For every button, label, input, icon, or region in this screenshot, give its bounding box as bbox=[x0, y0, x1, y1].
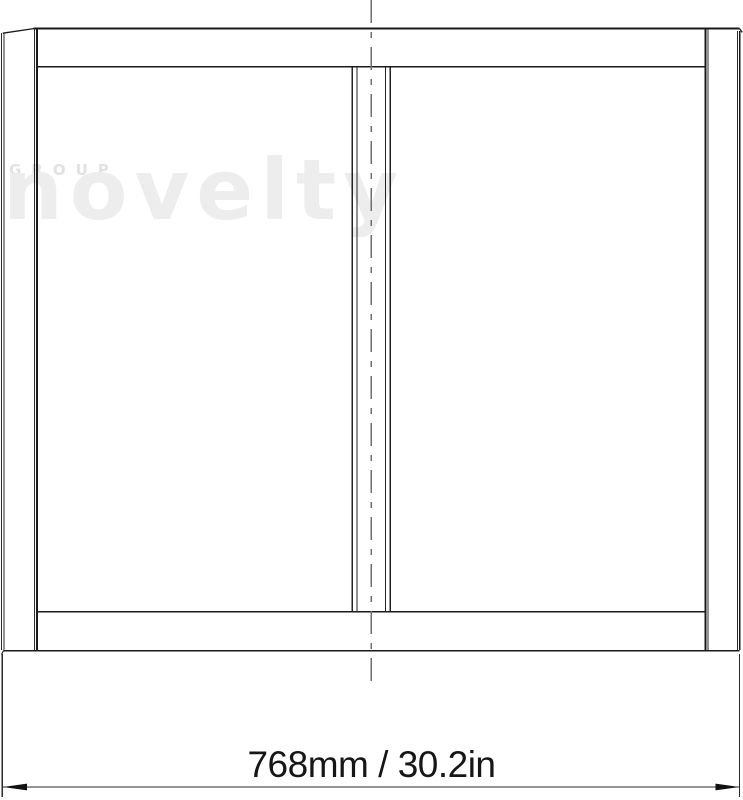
drawing-linework bbox=[0, 0, 743, 800]
dimension-label: 768mm / 30.2in bbox=[0, 744, 743, 786]
top-left-chamfer-line bbox=[3, 29, 34, 34]
left-side-rail bbox=[2, 29, 37, 650]
right-side-rail bbox=[705, 29, 739, 650]
technical-drawing-canvas: GROUP novelty bbox=[0, 0, 743, 800]
